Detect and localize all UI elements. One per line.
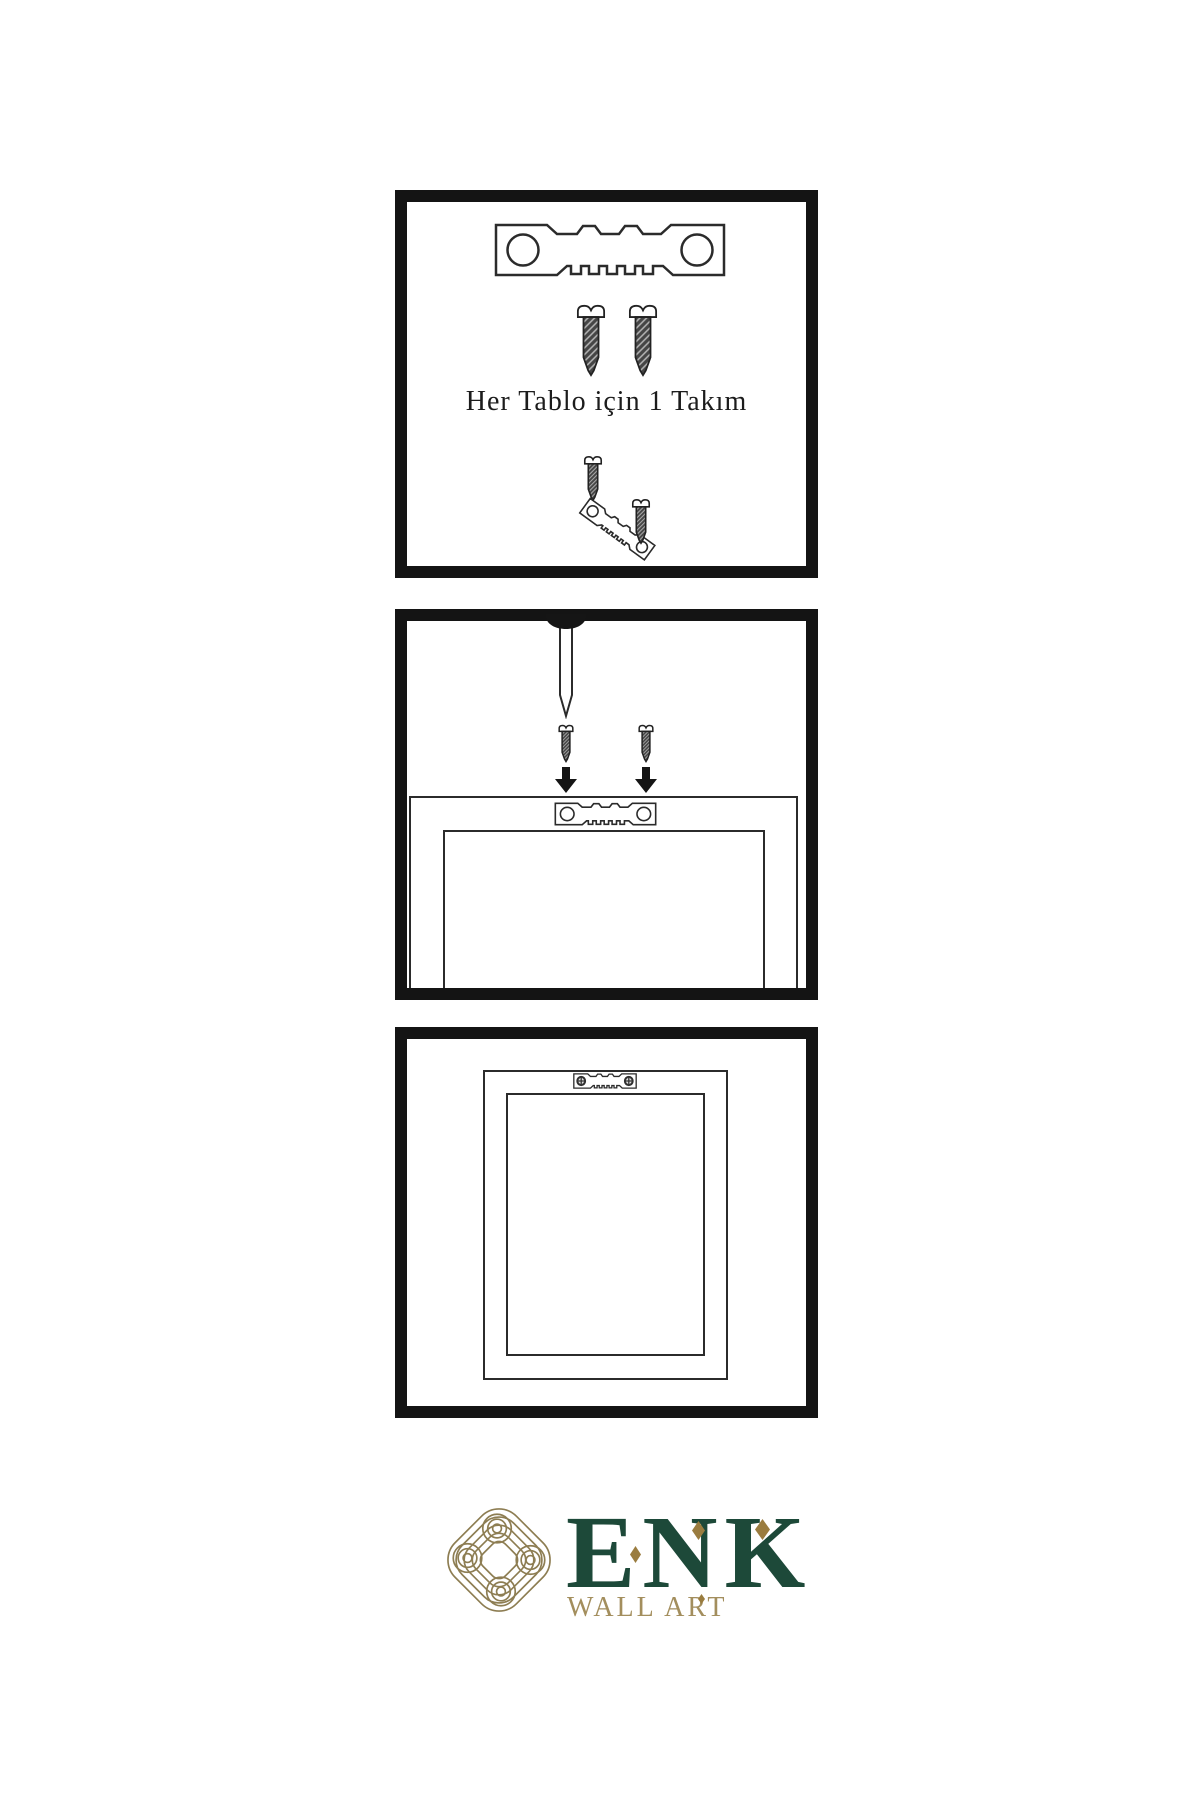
interlaced-knot-icon [438,1502,560,1618]
screw-icon [583,455,603,502]
brand-wordmark: ENK [566,1501,812,1605]
screw-icon [635,724,657,763]
wall-nail-icon [544,613,588,719]
screw-icon [555,724,577,763]
screw-icon [631,498,651,545]
sawtooth-hanger-icon [554,802,657,826]
kit-caption: Her Tablo için 1 Takım [407,386,806,418]
frame-back-icon [407,621,806,988]
panel-hardware-kit: Her Tablo için 1 Takım [395,190,818,578]
knot-ring-cluster [453,1514,545,1606]
arrow-down-icon [635,767,657,793]
panel-wall-mounting [395,609,818,1000]
product-instruction-image: Her Tablo için 1 Takım [0,0,1200,1800]
frame-inner-edge [506,1093,705,1356]
arrow-down-icon [555,767,577,793]
sawtooth-hanger-mounted-icon [573,1073,637,1089]
frame-inner-edge [443,830,765,988]
panel-hung-frame [395,1027,818,1418]
screw-icon [627,303,659,378]
screw-icon [575,303,607,378]
sawtooth-hanger-icon [493,222,727,278]
